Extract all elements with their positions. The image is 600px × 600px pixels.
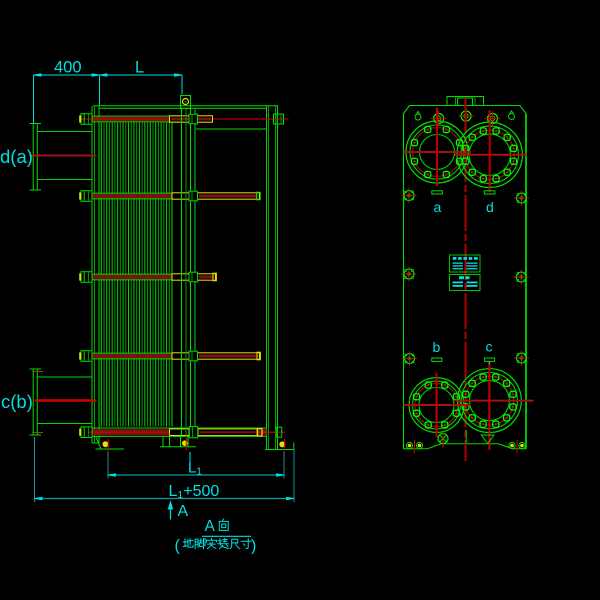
svg-text:L: L [135,59,144,77]
svg-text:L1: L1 [188,460,202,478]
svg-text:A: A [178,503,189,520]
svg-text:c(b): c(b) [1,391,33,412]
svg-text:400: 400 [54,59,82,77]
svg-text:d(a): d(a) [0,146,33,167]
svg-text:c: c [486,339,493,355]
svg-text:): ) [251,538,256,555]
svg-text:a: a [434,199,442,215]
svg-text:(: ( [175,538,181,555]
svg-text:d: d [486,199,494,215]
svg-text:b: b [433,339,441,355]
svg-text:A: A [205,518,216,535]
svg-text:L1+500: L1+500 [169,483,220,501]
